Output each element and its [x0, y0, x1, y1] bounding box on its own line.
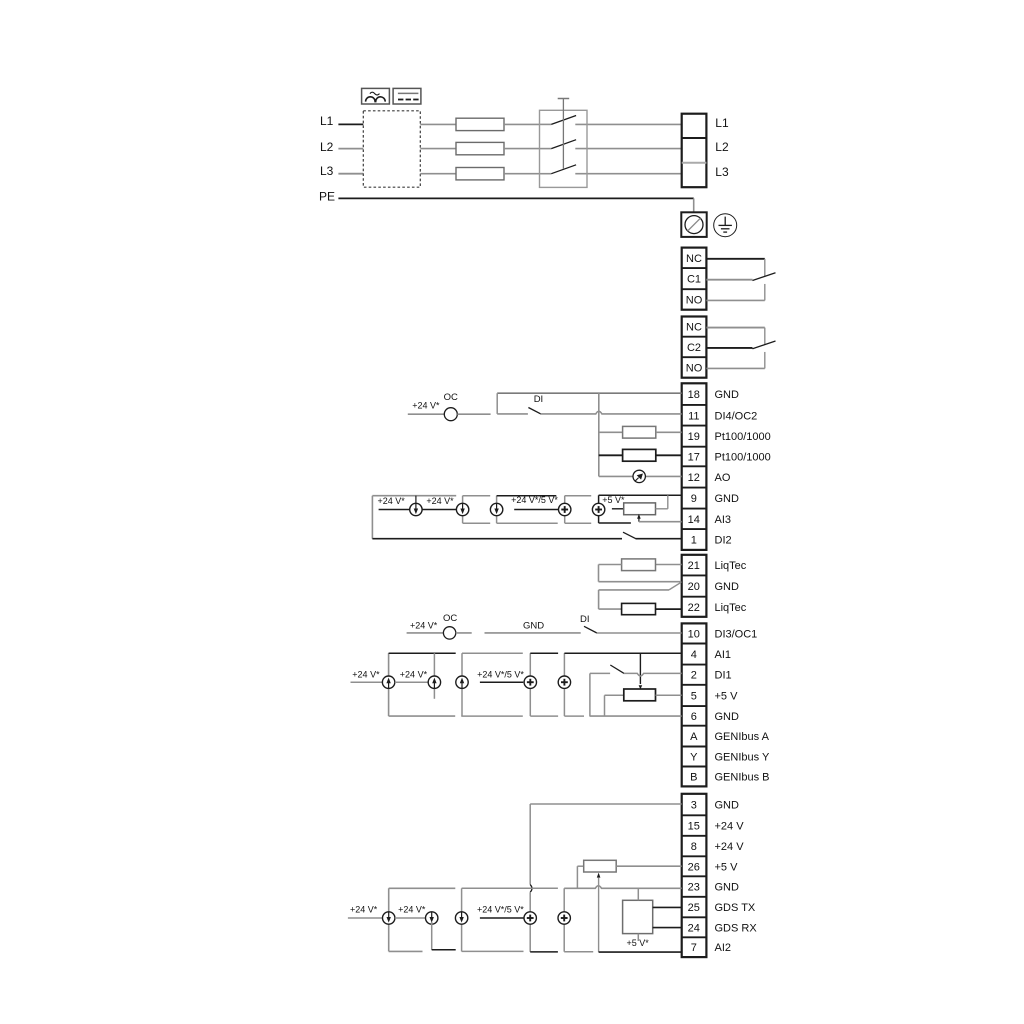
- svg-text:GENIbus B: GENIbus B: [715, 771, 770, 783]
- svg-text:6: 6: [691, 711, 697, 723]
- svg-text:21: 21: [688, 560, 700, 572]
- svg-text:C1: C1: [687, 274, 701, 286]
- svg-text:+24 V*: +24 V*: [350, 904, 378, 914]
- svg-text:GND: GND: [715, 711, 740, 723]
- svg-text:+5 V: +5 V: [715, 690, 739, 702]
- svg-text:10: 10: [688, 628, 700, 640]
- svg-text:GENIbus Y: GENIbus Y: [715, 752, 770, 764]
- svg-text:+24 V*/5 V*: +24 V*/5 V*: [477, 904, 524, 914]
- svg-text:LiqTec: LiqTec: [715, 602, 747, 614]
- svg-text:DI: DI: [580, 614, 590, 625]
- svg-text:12: 12: [688, 472, 700, 484]
- svg-text:L3: L3: [320, 164, 334, 178]
- svg-text:+24 V*: +24 V*: [398, 904, 426, 914]
- svg-text:2: 2: [691, 670, 697, 682]
- svg-text:17: 17: [688, 452, 700, 464]
- svg-text:Y: Y: [690, 752, 698, 764]
- svg-text:NO: NO: [686, 362, 703, 374]
- svg-text:+24 V*: +24 V*: [378, 496, 406, 506]
- svg-text:DI: DI: [534, 394, 544, 405]
- svg-text:1: 1: [691, 535, 697, 547]
- svg-text:L2: L2: [320, 140, 334, 154]
- svg-text:GND: GND: [715, 581, 740, 593]
- svg-text:B: B: [690, 771, 697, 783]
- svg-text:23: 23: [688, 882, 700, 894]
- svg-text:OC: OC: [443, 613, 457, 624]
- svg-text:8: 8: [691, 841, 697, 853]
- svg-text:AO: AO: [715, 472, 731, 484]
- svg-text:+24 V*: +24 V*: [352, 669, 380, 679]
- svg-text:L1: L1: [320, 114, 334, 128]
- svg-text:25: 25: [688, 902, 700, 914]
- svg-text:+5 V*: +5 V*: [602, 495, 625, 505]
- svg-text:C2: C2: [687, 342, 701, 354]
- svg-text:+24 V*: +24 V*: [400, 669, 428, 679]
- svg-text:L2: L2: [715, 140, 729, 154]
- svg-text:OC: OC: [444, 392, 458, 403]
- svg-text:DI3/OC1: DI3/OC1: [715, 628, 758, 640]
- svg-text:+5 V: +5 V: [715, 861, 739, 873]
- svg-text:22: 22: [688, 602, 700, 614]
- svg-text:+5 V*: +5 V*: [627, 938, 650, 948]
- svg-text:GND: GND: [715, 389, 740, 401]
- svg-text:DI2: DI2: [715, 535, 732, 547]
- svg-text:26: 26: [688, 861, 700, 873]
- svg-text:DI1: DI1: [715, 670, 732, 682]
- svg-text:GDS RX: GDS RX: [715, 922, 758, 934]
- svg-text:AI2: AI2: [715, 942, 732, 954]
- svg-text:Pt100/1000: Pt100/1000: [715, 452, 771, 464]
- svg-text:14: 14: [688, 514, 700, 526]
- svg-text:L3: L3: [715, 165, 729, 179]
- svg-text:AI1: AI1: [715, 649, 732, 661]
- svg-text:GND: GND: [715, 882, 740, 894]
- svg-text:+24 V*: +24 V*: [412, 400, 440, 410]
- svg-text:18: 18: [688, 389, 700, 401]
- svg-text:24: 24: [688, 922, 700, 934]
- svg-text:15: 15: [688, 821, 700, 833]
- svg-text:20: 20: [688, 581, 700, 593]
- svg-text:PE: PE: [319, 189, 335, 203]
- svg-text:7: 7: [691, 942, 697, 954]
- svg-text:9: 9: [691, 493, 697, 505]
- svg-text:5: 5: [691, 690, 697, 702]
- svg-text:19: 19: [688, 431, 700, 443]
- svg-text:NC: NC: [686, 322, 702, 334]
- svg-text:GENIbus A: GENIbus A: [715, 731, 770, 743]
- svg-text:NO: NO: [686, 294, 703, 306]
- svg-text:GND: GND: [715, 800, 740, 812]
- svg-text:+24 V*: +24 V*: [426, 496, 454, 506]
- svg-text:+24 V*/5 V*: +24 V*/5 V*: [511, 495, 558, 505]
- svg-text:3: 3: [691, 800, 697, 812]
- svg-text:+24 V*: +24 V*: [410, 621, 438, 631]
- svg-text:4: 4: [691, 649, 697, 661]
- svg-text:NC: NC: [686, 253, 702, 265]
- svg-text:+24 V*/5 V*: +24 V*/5 V*: [477, 669, 524, 679]
- svg-text:L1: L1: [715, 116, 729, 130]
- svg-text:GND: GND: [523, 621, 544, 632]
- svg-text:+24 V: +24 V: [715, 841, 745, 853]
- svg-text:DI4/OC2: DI4/OC2: [715, 410, 758, 422]
- svg-text:A: A: [690, 731, 698, 743]
- svg-text:GND: GND: [715, 493, 740, 505]
- svg-text:AI3: AI3: [715, 514, 732, 526]
- svg-text:GDS TX: GDS TX: [715, 902, 756, 914]
- svg-text:11: 11: [688, 410, 699, 422]
- svg-text:+24 V: +24 V: [715, 821, 745, 833]
- svg-text:LiqTec: LiqTec: [715, 560, 747, 572]
- svg-text:Pt100/1000: Pt100/1000: [715, 431, 771, 443]
